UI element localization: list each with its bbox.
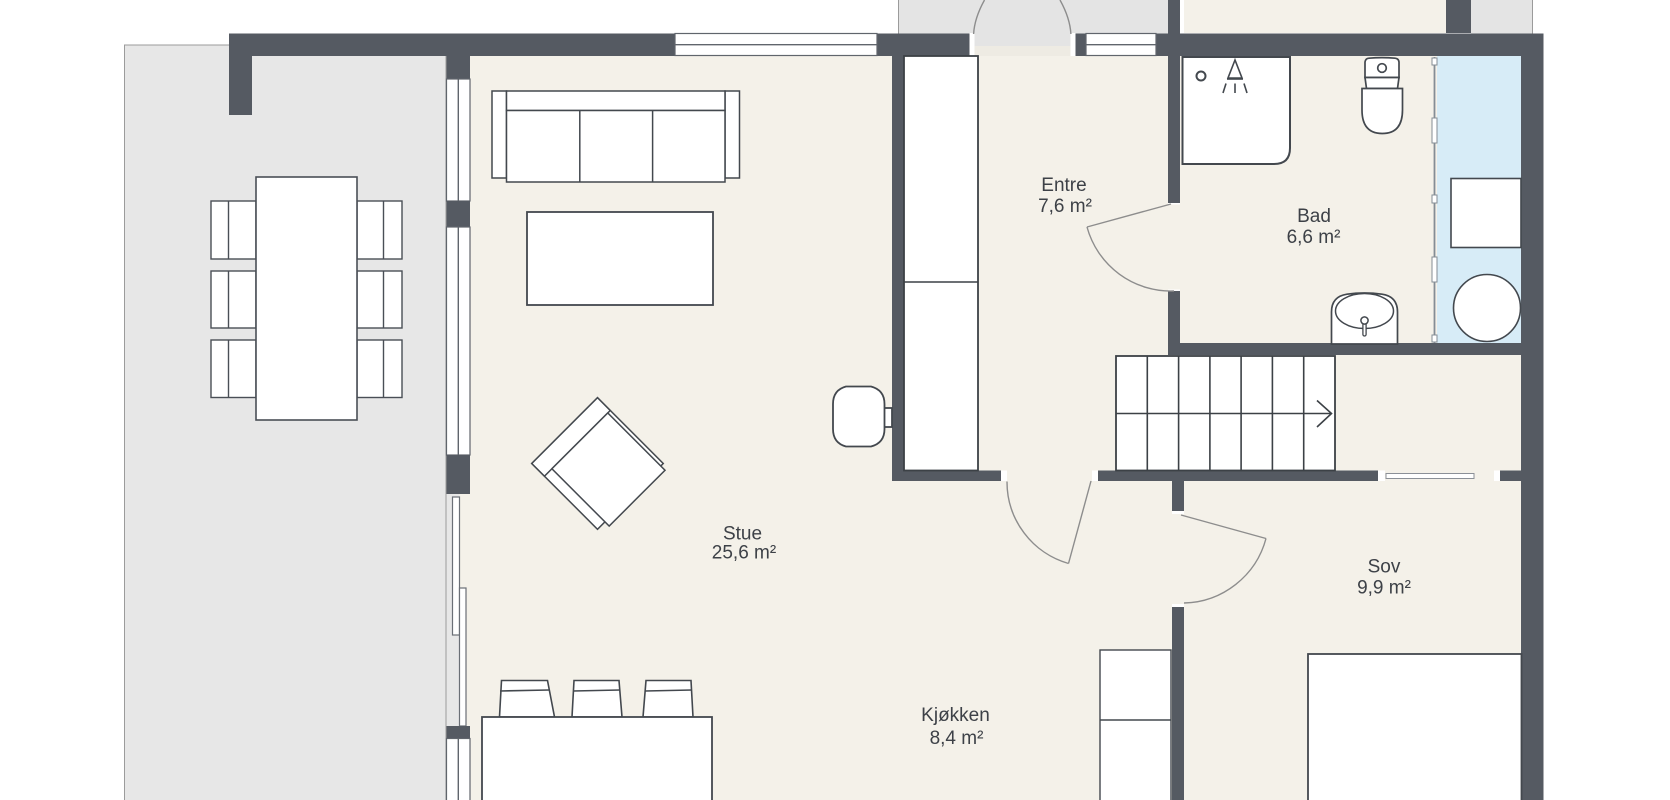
svg-text:9,9 m²: 9,9 m² [1357, 578, 1411, 599]
svg-text:Sov: Sov [1368, 557, 1401, 578]
svg-text:25,6 m²: 25,6 m² [712, 543, 776, 564]
svg-text:8,4 m²: 8,4 m² [930, 728, 984, 749]
svg-text:Kjøkken: Kjøkken [921, 705, 990, 726]
svg-text:7,6 m²: 7,6 m² [1038, 196, 1092, 217]
svg-text:Bad: Bad [1297, 206, 1331, 227]
svg-text:6,6 m²: 6,6 m² [1287, 227, 1341, 248]
svg-text:Entre: Entre [1041, 175, 1086, 196]
svg-text:Stue: Stue [723, 524, 762, 545]
